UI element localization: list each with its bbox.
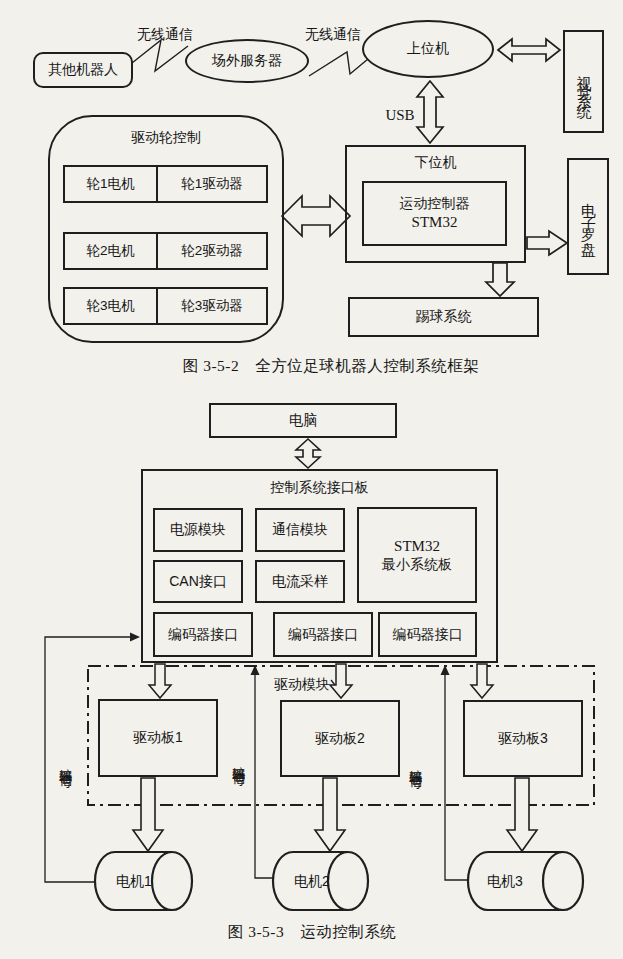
arrow-lowercomputer-kicksystem xyxy=(486,263,514,296)
motor-2-label: 电机2 xyxy=(281,872,343,890)
motion-controller-box: 运动控制器 STM32 xyxy=(362,181,507,246)
arrow-driveboard1-motor1 xyxy=(133,778,163,851)
motor-3-label: 电机3 xyxy=(474,872,536,890)
wheel3-driver-cell: 轮3驱动器 xyxy=(156,287,268,325)
stm32-minimal-board-box: STM32 最小系统板 xyxy=(357,507,477,603)
other-robots-box: 其他机器人 xyxy=(33,52,133,88)
motion-controller-line2: STM32 xyxy=(412,213,458,232)
usb-label: USB xyxy=(378,106,422,124)
lower-computer-title: 下位机 xyxy=(345,152,526,172)
host-computer-ellipse: 上位机 xyxy=(362,20,494,78)
compass-box: 电子罗盘 xyxy=(567,158,609,275)
motor-1-label: 电机1 xyxy=(103,872,165,890)
stm32-line1: STM32 xyxy=(394,537,440,556)
encoder-port-1-box: 编码器接口 xyxy=(153,612,253,657)
encoder-port-2-box: 编码器接口 xyxy=(273,612,373,657)
wireless-zigzag-2 xyxy=(309,52,368,76)
wheel-control-title: 驱动轮控制 xyxy=(48,127,284,147)
arrow-driveboard3-motor3 xyxy=(507,778,537,851)
arrow-board-driveboard1 xyxy=(149,664,171,698)
drive-board-2-box: 驱动板2 xyxy=(280,700,400,777)
field-server-ellipse: 场外服务器 xyxy=(185,39,309,83)
motion-controller-line1: 运动控制器 xyxy=(400,195,470,213)
interface-board-title: 控制系统接口板 xyxy=(141,477,498,497)
kick-system-box: 踢球系统 xyxy=(348,297,539,337)
encoder-signal-label-3: 编码器信号 xyxy=(407,723,424,805)
encoder-signal-label-2: 编码器信号 xyxy=(230,720,247,802)
drive-board-3-box: 驱动板3 xyxy=(463,700,583,777)
power-module-box: 电源模块 xyxy=(153,508,243,552)
encoder-port-3-box: 编码器接口 xyxy=(378,612,477,657)
stm32-line2: 最小系统板 xyxy=(382,556,452,574)
wheel3-motor-cell: 轮3电机 xyxy=(63,287,158,325)
arrow-board-driveboard3 xyxy=(471,664,493,698)
arrow-lowercomputer-compass xyxy=(527,231,567,255)
wheel1-motor-cell: 轮1电机 xyxy=(63,165,158,203)
comm-module-box: 通信模块 xyxy=(255,508,345,552)
wheel2-driver-cell: 轮2驱动器 xyxy=(156,232,268,270)
arrow-wheelcontrol-lowercomputer xyxy=(282,196,350,236)
figure-3-5-3-caption: 图 3-5-3 运动控制系统 xyxy=(150,921,474,943)
encoder-feedback-line-2 xyxy=(251,665,274,878)
drive-board-1-box: 驱动板1 xyxy=(98,699,218,777)
wheel2-motor-cell: 轮2电机 xyxy=(63,232,158,270)
computer-box: 电脑 xyxy=(209,403,397,438)
drive-module-label: 驱动模块 xyxy=(264,675,340,693)
arrow-computer-board xyxy=(296,439,320,468)
arrow-driveboard2-motor2 xyxy=(315,778,345,851)
wheel1-driver-cell: 轮1驱动器 xyxy=(156,165,268,203)
page: 无线通信 无线通信 其他机器人 场外服务器 上位机 USB 视觉系统 下位机 运… xyxy=(0,0,623,959)
vision-system-box: 视觉系统 xyxy=(563,30,604,133)
can-interface-box: CAN接口 xyxy=(153,560,243,603)
encoder-signal-label-1: 编码器信号 xyxy=(57,722,74,804)
figure-3-5-2-caption: 图 3-5-2 全方位足球机器人控制系统框架 xyxy=(100,355,562,377)
wireless-label-1: 无线通信 xyxy=(120,26,210,43)
arrow-host-vision xyxy=(498,39,560,61)
wireless-zigzag-1 xyxy=(132,40,188,71)
current-sampling-box: 电流采样 xyxy=(255,560,345,603)
